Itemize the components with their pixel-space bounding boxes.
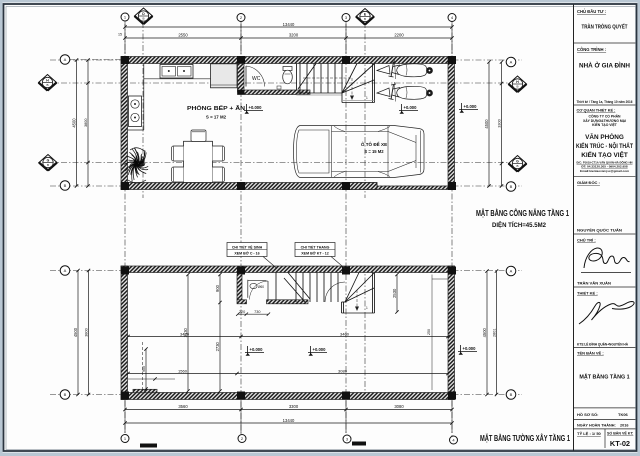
svg-text:4500: 4500 <box>71 118 76 128</box>
svg-text:4500: 4500 <box>482 327 487 337</box>
svg-text:+0.000: +0.000 <box>313 347 327 352</box>
svg-text:1: 1 <box>366 96 368 100</box>
svg-text:1: 1 <box>366 306 368 310</box>
svg-text:KT-02: KT-02 <box>610 439 630 448</box>
svg-text:B: B <box>516 85 518 89</box>
svg-text:G: G <box>47 159 50 163</box>
svg-text:15: 15 <box>118 33 122 37</box>
svg-text:B: B <box>510 184 513 189</box>
svg-text:TỸ LỆ : 1/ 50: TỸ LỆ : 1/ 50 <box>577 431 602 436</box>
svg-text:3300: 3300 <box>289 404 299 409</box>
svg-text:3080: 3080 <box>394 404 404 409</box>
svg-text:NGUYỄN QUỐC TUẤN: NGUYỄN QUỐC TUẤN <box>577 228 622 233</box>
svg-text:Email:kientaoviet.jsc@gmail.co: Email:kientaoviet.jsc@gmail.com <box>580 169 629 173</box>
svg-text:Thiết kế / Tầng 1a, Tháng 10 n: Thiết kế / Tầng 1a, Tháng 10 năm 2016 <box>577 100 633 104</box>
svg-text:3470: 3470 <box>180 331 190 336</box>
svg-text:2530: 2530 <box>392 288 397 298</box>
svg-text:KTS:LÊ ĐÌNH QUẬN+NGUYỄN HÀ: KTS:LÊ ĐÌNH QUẬN+NGUYỄN HÀ <box>577 342 628 347</box>
svg-text:NGÀY HOÀN THÀNH:: NGÀY HOÀN THÀNH: <box>577 423 616 428</box>
svg-text:NHÀ Ở GIA ĐÌNH: NHÀ Ở GIA ĐÌNH <box>579 61 630 70</box>
svg-text:3400: 3400 <box>340 331 350 336</box>
svg-text:13440: 13440 <box>283 22 295 27</box>
svg-text:A: A <box>510 269 513 274</box>
svg-text:B: B <box>64 183 67 188</box>
svg-text:13440: 13440 <box>283 418 295 423</box>
svg-text:900: 900 <box>215 284 220 292</box>
svg-text:2550: 2550 <box>178 33 188 38</box>
svg-text:B: B <box>516 164 518 168</box>
svg-text:VĂN PHÒNG: VĂN PHÒNG <box>585 132 624 141</box>
svg-text:MẶT BẰNG CÔNG NĂNG TẦNG 1: MẶT BẰNG CÔNG NĂNG TẦNG 1 <box>476 208 569 218</box>
svg-text:A: A <box>510 60 513 65</box>
svg-text:3800: 3800 <box>84 119 88 127</box>
svg-text:B: B <box>510 392 513 397</box>
svg-text:3560: 3560 <box>178 404 188 409</box>
svg-text:2200: 2200 <box>394 33 404 38</box>
svg-text:TRẦN VĂN XUÂN: TRẦN VĂN XUÂN <box>577 281 611 286</box>
svg-text:S = 17 M2: S = 17 M2 <box>206 115 227 120</box>
svg-text:2016: 2016 <box>620 424 628 428</box>
svg-text:B: B <box>47 163 49 167</box>
svg-text:SỐ BẢN VẼ KT:: SỐ BẢN VẼ KT: <box>607 431 633 436</box>
svg-text:WC: WC <box>252 76 261 82</box>
svg-text:1560: 1560 <box>178 368 188 373</box>
svg-text:CHI TIẾT VỆ SINH: CHI TIẾT VỆ SINH <box>232 245 263 250</box>
svg-text:GIÁM ĐỐC :: GIÁM ĐỐC : <box>577 180 600 185</box>
svg-text:CHỦ TRÌ :: CHỦ TRÌ : <box>577 238 596 243</box>
svg-text:A: A <box>64 57 67 62</box>
svg-text:MẶT BẰNG TẦNG 1: MẶT BẰNG TẦNG 1 <box>579 373 629 381</box>
svg-text:900: 900 <box>142 366 146 372</box>
svg-text:TÊN BẢN VẼ :: TÊN BẢN VẼ : <box>577 351 604 356</box>
svg-text:DIỆN TÍCH=45.5M2: DIỆN TÍCH=45.5M2 <box>492 221 547 229</box>
svg-text:4500: 4500 <box>484 119 489 129</box>
svg-text:KIẾN TRÚC - NỘI THẤT: KIẾN TRÚC - NỘI THẤT <box>576 142 633 150</box>
svg-text:CÔNG TY CỔ PHẦN: CÔNG TY CỔ PHẦN <box>589 114 622 119</box>
svg-text:G: G <box>516 160 519 164</box>
svg-text:4500: 4500 <box>73 327 78 337</box>
svg-text:PHÒNG BẾP + ĂN: PHÒNG BẾP + ĂN <box>187 104 245 112</box>
svg-text:730: 730 <box>254 310 260 314</box>
svg-text:+0.000: +0.000 <box>404 105 418 110</box>
svg-text:XÂY DỰNG&THƯƠNG MẠI: XÂY DỰNG&THƯƠNG MẠI <box>583 118 626 123</box>
svg-text:2801: 2801 <box>492 329 496 337</box>
svg-text:3080: 3080 <box>338 368 348 373</box>
svg-text:+0.000: +0.000 <box>464 104 478 109</box>
svg-text:XEM BỞ C - 16: XEM BỞ C - 16 <box>234 251 259 256</box>
svg-text:HỒ SƠ SỐ:: HỒ SƠ SỐ: <box>577 412 598 417</box>
svg-text:A: A <box>64 268 67 273</box>
svg-text:220: 220 <box>239 310 245 314</box>
svg-text:B: B <box>142 17 144 21</box>
svg-text:B: B <box>364 17 366 21</box>
svg-text:CƠ QUAN THIẾT KẾ :: CƠ QUAN THIẾT KẾ : <box>577 108 616 113</box>
svg-text:CÔNG TRÌNH :: CÔNG TRÌNH : <box>577 47 606 52</box>
svg-text:3200: 3200 <box>289 33 299 38</box>
svg-text:3300: 3300 <box>497 119 501 127</box>
svg-text:B: B <box>64 392 67 397</box>
svg-text:KIẾN TẠO VIỆT: KIẾN TẠO VIỆT <box>592 122 618 127</box>
svg-text:Ø60: Ø60 <box>258 285 264 289</box>
svg-text:CHI TIẾT THANG: CHI TIẾT THANG <box>301 245 330 250</box>
svg-text:CHỦ ĐẦU TƯ :: CHỦ ĐẦU TƯ : <box>577 9 606 14</box>
svg-text:TK06: TK06 <box>618 412 629 417</box>
svg-text:2730: 2730 <box>215 341 220 351</box>
svg-text:+0.000: +0.000 <box>463 346 477 351</box>
svg-text:TRẦN TRỎNG QUYẾT: TRẦN TRỎNG QUYẾT <box>582 24 629 31</box>
svg-text:+0.000: +0.000 <box>250 347 264 352</box>
svg-text:250: 250 <box>427 329 431 335</box>
svg-text:3800: 3800 <box>84 328 88 336</box>
svg-text:ĐT: 04.33120.305 - 0904.202.95: ĐT: 04.33120.305 - 0904.202.958 <box>581 165 628 169</box>
svg-text:Ô TÔ ĐỂ XE: Ô TÔ ĐỂ XE <box>361 140 387 147</box>
svg-text:B: B <box>46 83 48 87</box>
svg-text:MẶT BẰNG TƯỜNG XÂY TẦNG 1: MẶT BẰNG TƯỜNG XÂY TẦNG 1 <box>480 433 570 443</box>
svg-text:XEM BỞ KT - 12: XEM BỞ KT - 12 <box>301 251 328 256</box>
svg-text:S = 15 M2: S = 15 M2 <box>364 149 384 154</box>
svg-text:THIẾT KẾ :: THIẾT KẾ : <box>577 291 598 296</box>
svg-text:+0.000: +0.000 <box>249 105 263 110</box>
